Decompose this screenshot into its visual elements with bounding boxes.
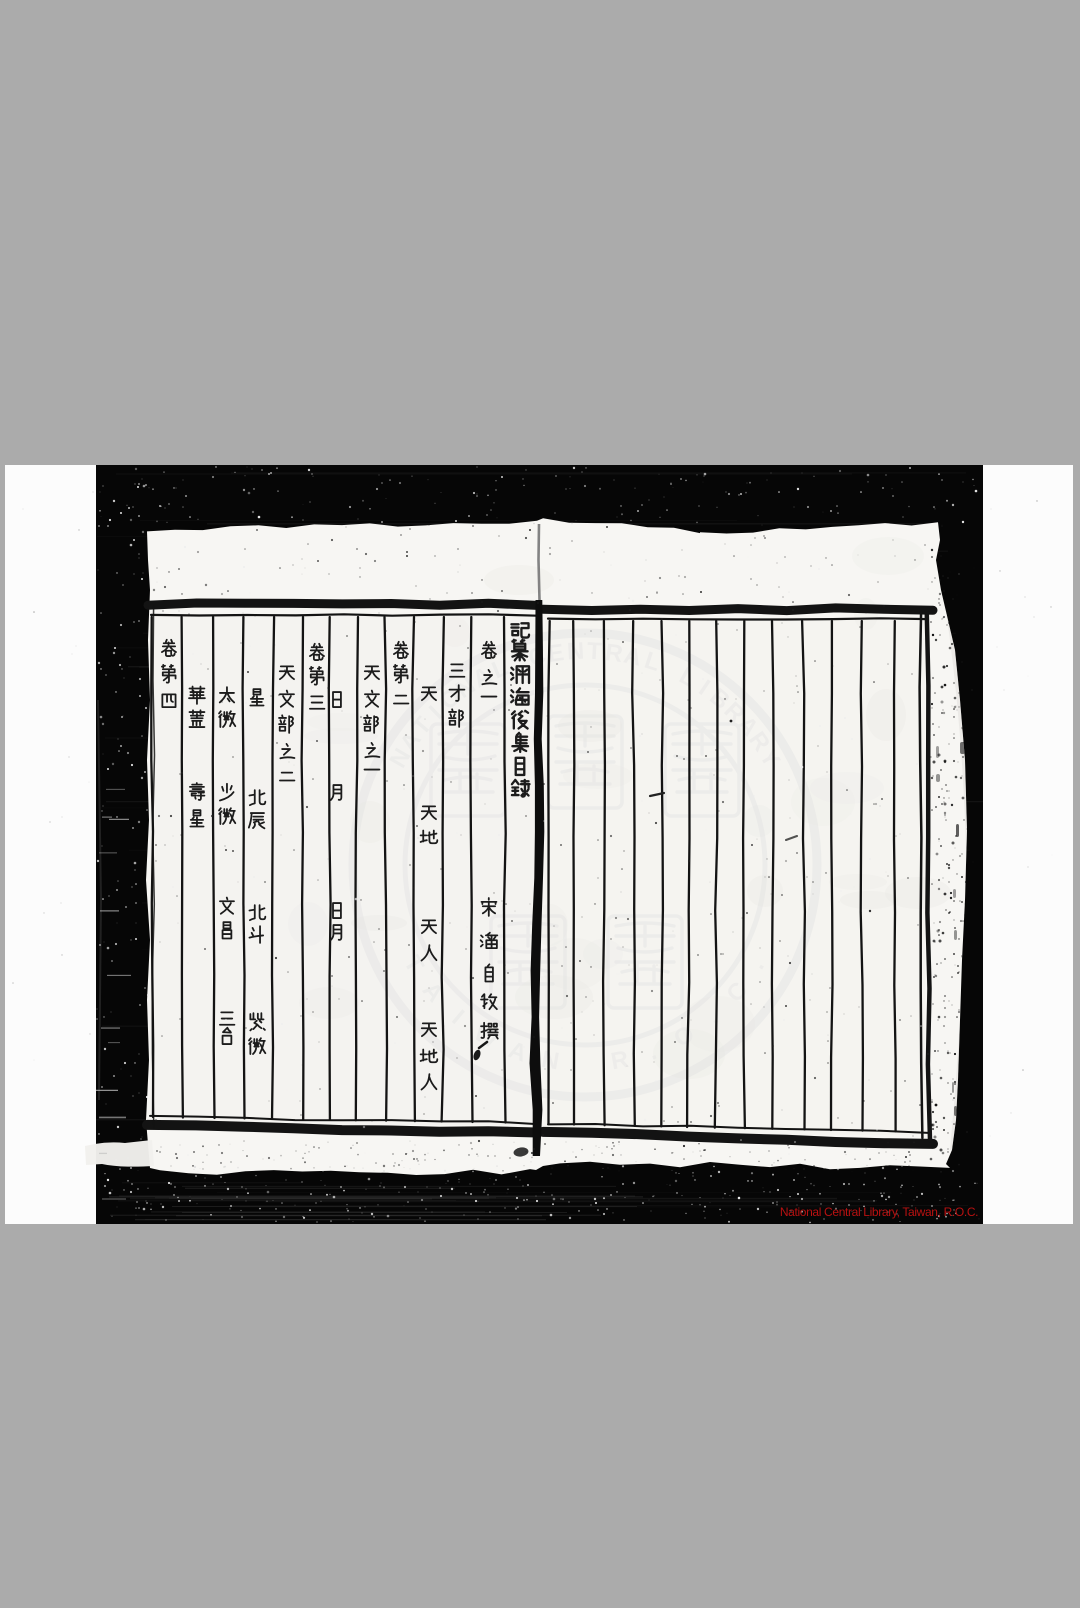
svg-text:T: T [586,638,602,666]
svg-text:National Central Library, Taiw: National Central Library, Taiwan, R.O.C. [780,1205,978,1219]
svg-text:N: N [566,638,585,666]
